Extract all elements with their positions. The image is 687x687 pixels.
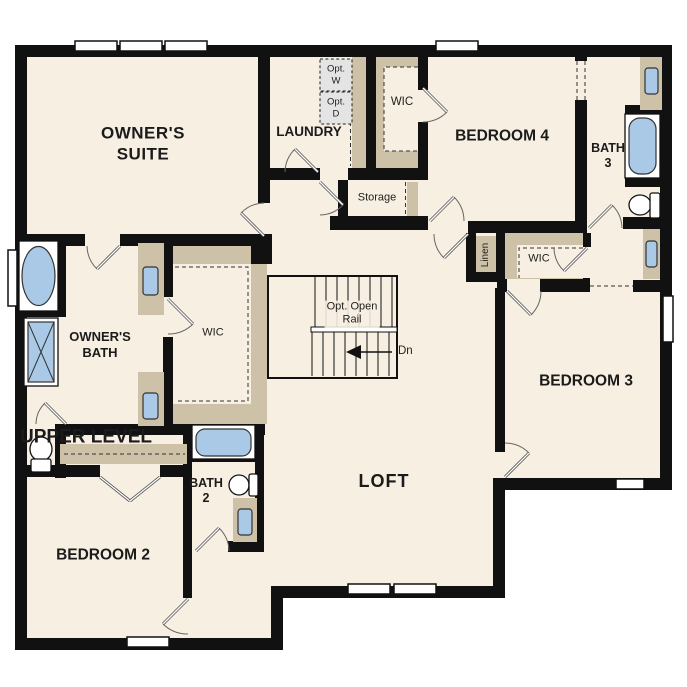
- sink-icon: [143, 267, 158, 295]
- plan-title: UPPER LEVEL: [20, 425, 152, 448]
- owners-tub-icon: [22, 247, 55, 306]
- linen-label: Linen: [480, 243, 492, 267]
- bath3-label: BATH3: [591, 141, 625, 172]
- owners-wic-label: WIC: [202, 326, 223, 339]
- window: [120, 41, 162, 51]
- window: [663, 296, 673, 342]
- bedroom2-label: BEDROOM 2: [56, 547, 150, 566]
- window: [127, 637, 169, 647]
- bedroom3-wic-label: WIC: [528, 252, 549, 265]
- bedroom3-label: BEDROOM 3: [539, 373, 633, 392]
- sink-icon: [143, 393, 158, 419]
- storage-label: Storage: [358, 191, 397, 204]
- opt-dryer-label: Opt.D: [327, 96, 345, 119]
- bath2-label: BATH2: [189, 476, 223, 507]
- owners-wic-shelf-right: [251, 264, 267, 424]
- window: [75, 41, 117, 51]
- window: [616, 479, 644, 489]
- window: [8, 250, 17, 306]
- laundry-cabinet: [352, 57, 366, 168]
- window: [165, 41, 207, 51]
- stairs-note: Opt. OpenRail: [325, 301, 380, 328]
- window: [394, 584, 436, 594]
- storage-shelf: [407, 182, 418, 216]
- bedroom4-label: BEDROOM 4: [455, 128, 549, 147]
- toilet-icon: [229, 474, 258, 496]
- owners-wic-shelf-top: [173, 246, 251, 264]
- bath2-tub-icon: [196, 429, 251, 456]
- optional-opening: [575, 61, 587, 100]
- loft-label: LOFT: [359, 471, 410, 493]
- window: [436, 41, 478, 51]
- bedroom4-wic-label: WIC: [391, 95, 413, 109]
- laundry-label: LAUNDRY: [276, 124, 342, 140]
- bath3-tub-icon: [629, 118, 656, 174]
- window: [348, 584, 390, 594]
- owners-wic-shelf-bottom: [173, 404, 251, 424]
- owners-suite-label: OWNER'SSUITE: [101, 123, 185, 164]
- sink-icon: [645, 68, 658, 94]
- sink-icon: [238, 509, 252, 535]
- sink-icon: [646, 241, 657, 267]
- floor-plan: OWNER'SSUITE LAUNDRY WIC BEDROOM 4 BATH3…: [0, 0, 687, 687]
- stairs-direction-label: Dn: [398, 344, 413, 358]
- opt-washer-label: Opt.W: [327, 63, 345, 86]
- owners-bath-label: OWNER'SBATH: [69, 329, 131, 361]
